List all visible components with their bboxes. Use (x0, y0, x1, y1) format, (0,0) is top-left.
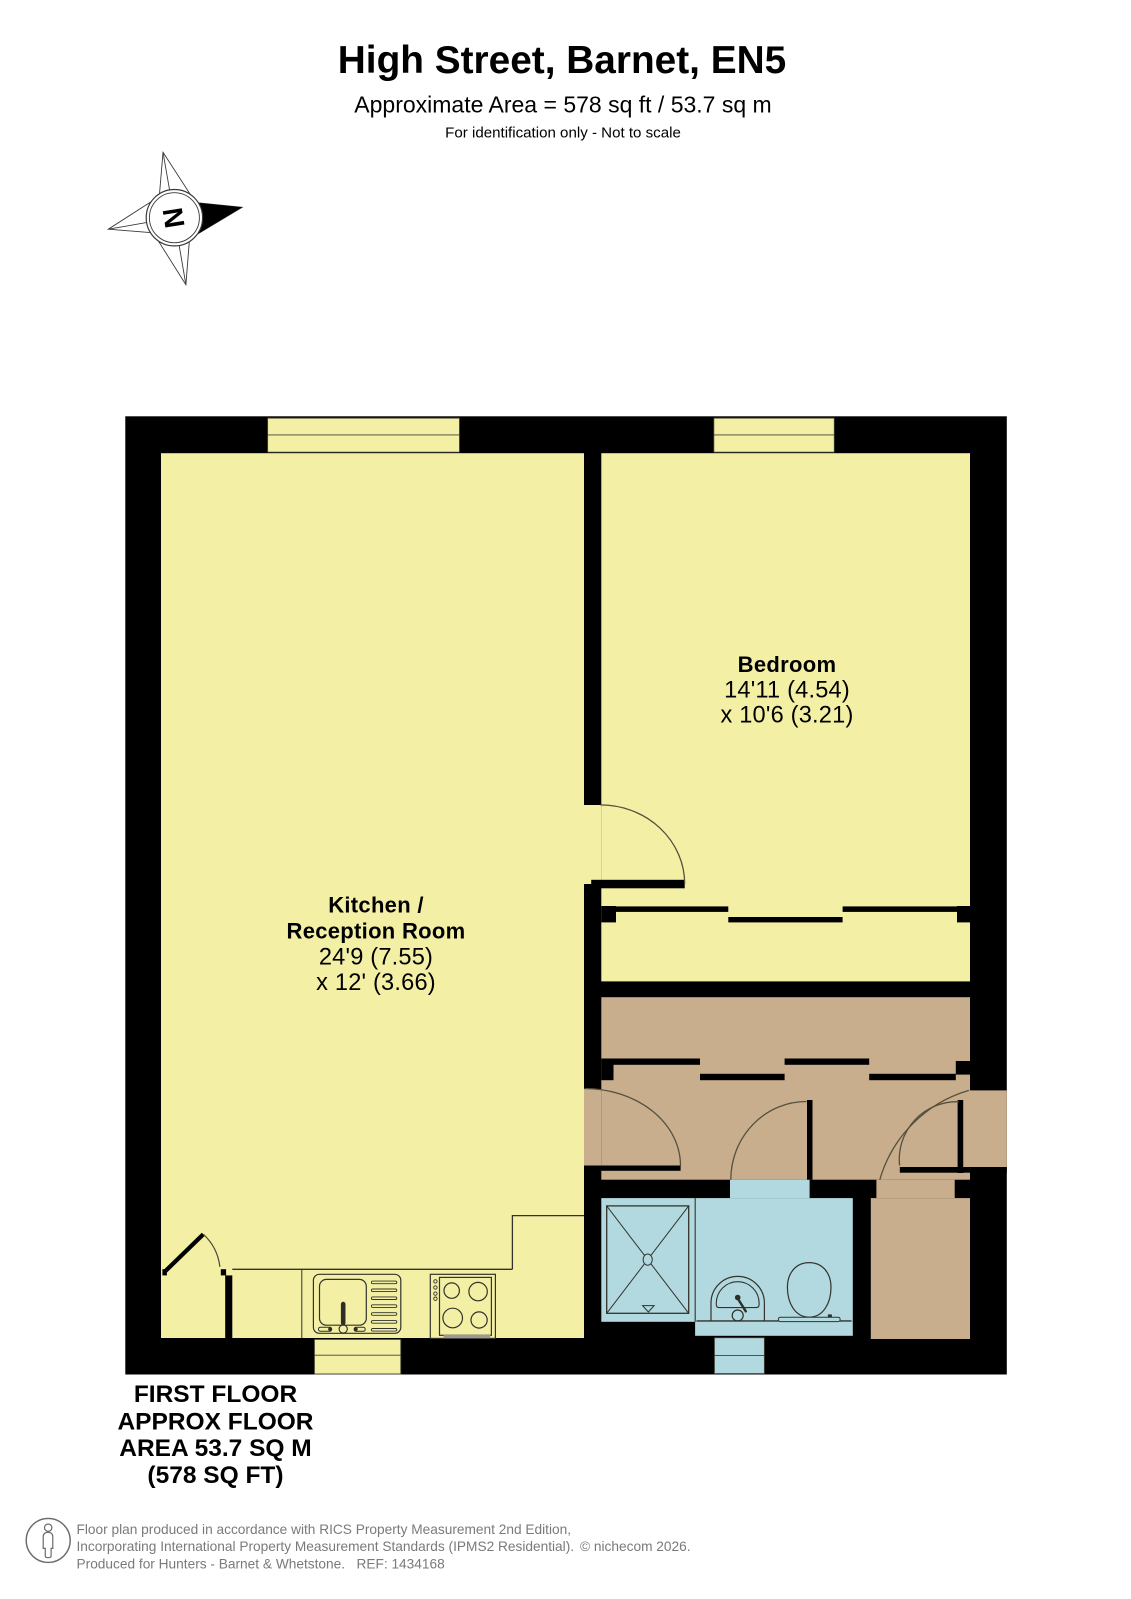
svg-text:Floor plan produced in accorda: Floor plan produced in accordance with R… (77, 1522, 572, 1537)
svg-text:Produced for Hunters - Barnet: Produced for Hunters - Barnet & Whetston… (77, 1557, 446, 1572)
svg-text:x 10'6 (3.21): x 10'6 (3.21) (720, 703, 853, 729)
svg-text:© nichecom 2026.: © nichecom 2026. (580, 1539, 691, 1554)
svg-text:Approximate Area = 578 sq ft /: Approximate Area = 578 sq ft / 53.7 sq m (354, 92, 771, 118)
svg-text:APPROX FLOOR: APPROX FLOOR (117, 1409, 313, 1436)
svg-text:Kitchen /: Kitchen / (328, 893, 424, 918)
svg-text:For identification only - Not: For identification only - Not to scale (445, 125, 681, 142)
svg-text:FIRST FLOOR: FIRST FLOOR (134, 1381, 298, 1408)
svg-text:Reception Room: Reception Room (287, 919, 466, 944)
svg-text:Bedroom: Bedroom (738, 652, 837, 677)
svg-text:x 12' (3.66): x 12' (3.66) (316, 970, 436, 996)
svg-text:High Street, Barnet, EN5: High Street, Barnet, EN5 (338, 39, 786, 82)
svg-text:AREA 53.7 SQ M: AREA 53.7 SQ M (119, 1435, 311, 1462)
svg-text:Incorporating International Pr: Incorporating International Property Mea… (77, 1539, 575, 1554)
svg-text:(578 SQ FT): (578 SQ FT) (147, 1462, 283, 1489)
svg-text:24'9 (7.55): 24'9 (7.55) (319, 945, 433, 971)
svg-text:14'11 (4.54): 14'11 (4.54) (724, 678, 850, 704)
